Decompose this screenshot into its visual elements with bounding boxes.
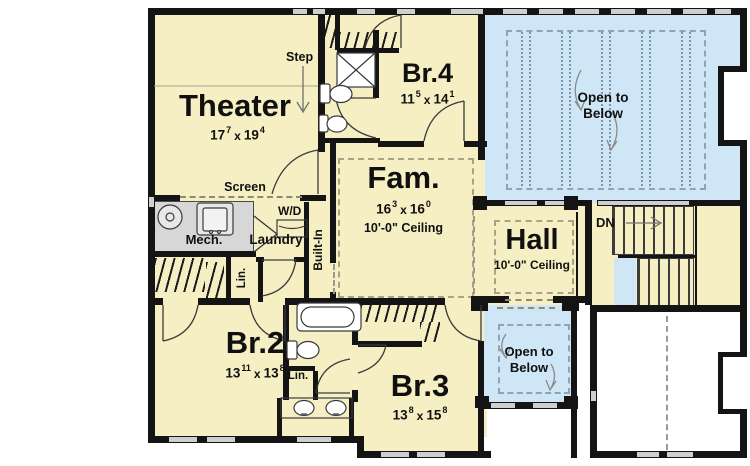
screen-label: Screen (200, 180, 290, 194)
fam-label: Fam. (336, 160, 471, 196)
hall-label: Hall (487, 224, 577, 257)
built-in-label: Built-In (311, 204, 325, 296)
step-label: Step (286, 50, 313, 64)
wd-label: W/D (278, 204, 301, 218)
br2-label: Br.2 (180, 325, 330, 361)
mech-label: Mech. (158, 232, 250, 247)
br4-dimensions: 115x141 (375, 90, 480, 107)
dn-label: DN (596, 215, 615, 230)
fam-ceiling-note: 10'-0" Ceiling (336, 221, 471, 235)
br2-dimensions: 1311x138 (180, 364, 330, 381)
br3-dimensions: 138x158 (355, 406, 485, 423)
mech-fixtures (158, 203, 233, 235)
open-below-upper-label: Open to Below (560, 90, 646, 122)
theater-label: Theater (150, 88, 320, 124)
br3-label: Br.3 (355, 368, 485, 404)
open-below-lower-label: Open to Below (492, 344, 566, 376)
lin-upper-label: Lin. (236, 258, 248, 298)
laundry-label: Laundry (243, 232, 309, 247)
hall-ceiling-note: 10'-0" Ceiling (481, 258, 583, 272)
fam-dimensions: 163x160 (336, 200, 471, 217)
br4-label: Br.4 (375, 58, 480, 89)
theater-dimensions: 177x194 (150, 126, 325, 143)
second-floor-plan: Theater 177x194 Step Screen Br.4 115x141… (0, 0, 750, 466)
